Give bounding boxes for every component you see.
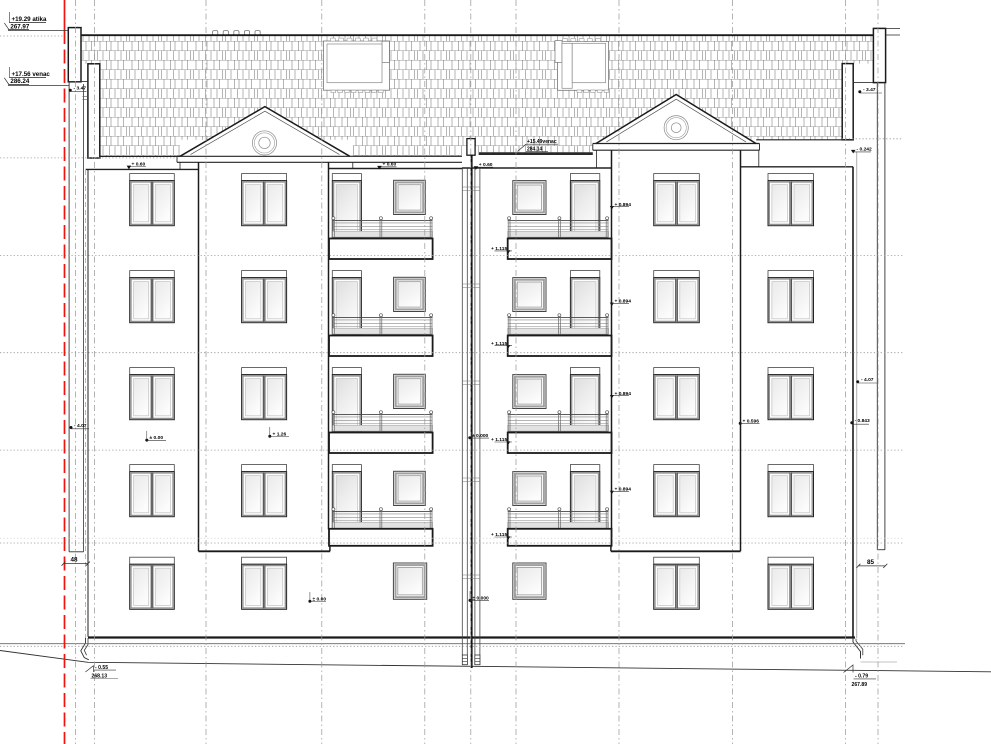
svg-text:267.89: 267.89 — [852, 682, 868, 688]
svg-text:- 3.47: - 3.47 — [863, 87, 876, 93]
svg-text:± 0.000: ± 0.000 — [473, 596, 490, 602]
svg-text:+ 1.115: + 1.115 — [491, 532, 507, 538]
svg-text:- 3.47: - 3.47 — [74, 86, 87, 92]
svg-text:+17.56 venac: +17.56 venac — [12, 71, 51, 78]
svg-text:± 0.00: ± 0.00 — [313, 596, 327, 602]
svg-text:+ 0.596: + 0.596 — [743, 419, 760, 425]
svg-text:± 0.00: ± 0.00 — [150, 435, 164, 441]
svg-text:+ 1.115: + 1.115 — [491, 437, 507, 443]
svg-text:- 0.843: - 0.843 — [855, 418, 871, 424]
svg-text:- 4.07: - 4.07 — [861, 377, 874, 383]
svg-text:- 0.242: - 0.242 — [857, 147, 873, 153]
svg-text:+ 1.26: + 1.26 — [273, 431, 287, 437]
svg-text:85: 85 — [867, 559, 875, 566]
svg-text:± 0.000: ± 0.000 — [472, 433, 489, 439]
svg-text:+ 0.894: + 0.894 — [615, 202, 632, 208]
svg-text:+ 1.115: + 1.115 — [491, 246, 507, 252]
svg-text:+ 1.115: + 1.115 — [491, 341, 507, 347]
svg-text:- 4.07: - 4.07 — [74, 423, 87, 429]
svg-text:+19.29 atika: +19.29 atika — [12, 16, 47, 23]
svg-text:48: 48 — [70, 557, 78, 564]
svg-text:+ 0.894: + 0.894 — [615, 487, 632, 493]
svg-text:+ 0.894: + 0.894 — [615, 391, 632, 397]
svg-text:+ 0.894: + 0.894 — [615, 299, 632, 305]
